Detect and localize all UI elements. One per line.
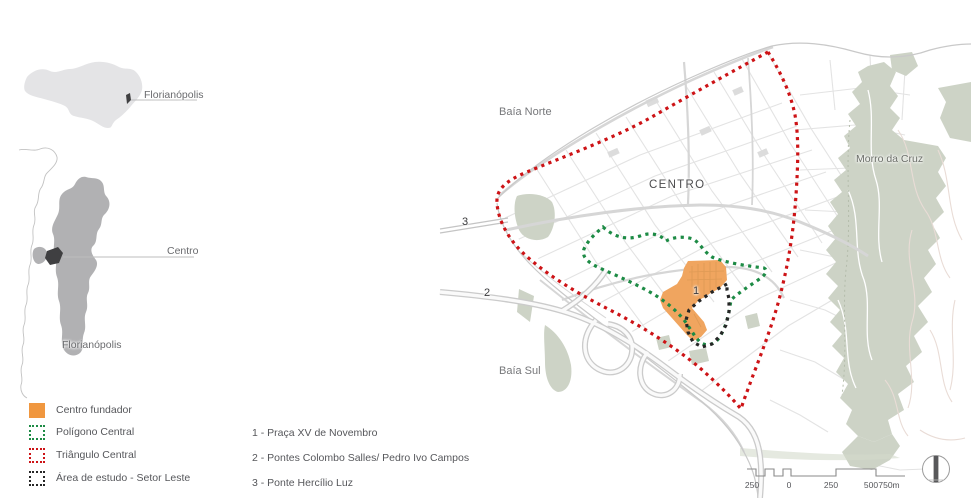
scale-tick-250-left: 250	[745, 480, 759, 490]
scale-tick-500: 500	[864, 480, 878, 490]
marker-1-praca-xv: 1	[693, 285, 699, 297]
scale-tick-250-right: 250	[824, 480, 838, 490]
note-1: 1 - Praça XV de Novembro	[252, 427, 377, 439]
legend-item-poligono-central: Polígono Central	[29, 423, 134, 441]
legend-label: Área de estudo - Setor Leste	[56, 472, 190, 484]
north-arrow-icon	[923, 456, 950, 483]
continent-district	[33, 247, 48, 264]
baia-norte-label: Baía Norte	[499, 106, 552, 118]
morro-da-cruz-area	[826, 62, 946, 442]
note-2: 2 - Pontes Colombo Salles/ Pedro Ivo Cam…	[252, 452, 469, 464]
legend-label: Polígono Central	[56, 426, 134, 438]
green-dotted-swatch	[29, 425, 45, 440]
black-dotted-swatch	[29, 471, 45, 486]
baia-sul-label: Baía Sul	[499, 365, 541, 377]
bridge-hercilio-luz	[440, 218, 508, 233]
map-figure: Florianópolis Centro Florianópolis Baía …	[0, 0, 971, 498]
note-3: 3 - Ponte Hercílio Luz	[252, 477, 353, 489]
scale-bar	[747, 469, 905, 476]
legend-item-centro-fundador: Centro fundador	[29, 401, 132, 419]
island-inset	[19, 148, 194, 398]
marker-2-pontes: 2	[484, 287, 490, 299]
expressway	[440, 270, 761, 498]
legend-label: Centro fundador	[56, 404, 132, 416]
mainland-outline	[19, 148, 57, 398]
marker-3-ponte-hercilio: 3	[462, 216, 468, 228]
centro-locator-label: Centro	[167, 245, 199, 257]
orange-square-swatch	[29, 403, 45, 418]
legend-item-area-de-estudo: Área de estudo - Setor Leste	[29, 469, 190, 487]
scale-tick-0: 0	[787, 480, 792, 490]
basemap-svg	[0, 0, 971, 498]
red-dotted-swatch	[29, 448, 45, 463]
scale-tick-750m: 750m	[878, 480, 899, 490]
state-capital-label: Florianópolis	[144, 89, 204, 101]
major-roads	[499, 47, 868, 452]
legend-item-triangulo-central: Triângulo Central	[29, 446, 136, 464]
island-city-label: Florianópolis	[62, 339, 122, 351]
centro-map-label: CENTRO	[649, 179, 705, 191]
island-shape	[52, 177, 109, 356]
morro-da-cruz-label: Morro da Cruz	[856, 153, 923, 165]
legend-label: Triângulo Central	[56, 449, 136, 461]
